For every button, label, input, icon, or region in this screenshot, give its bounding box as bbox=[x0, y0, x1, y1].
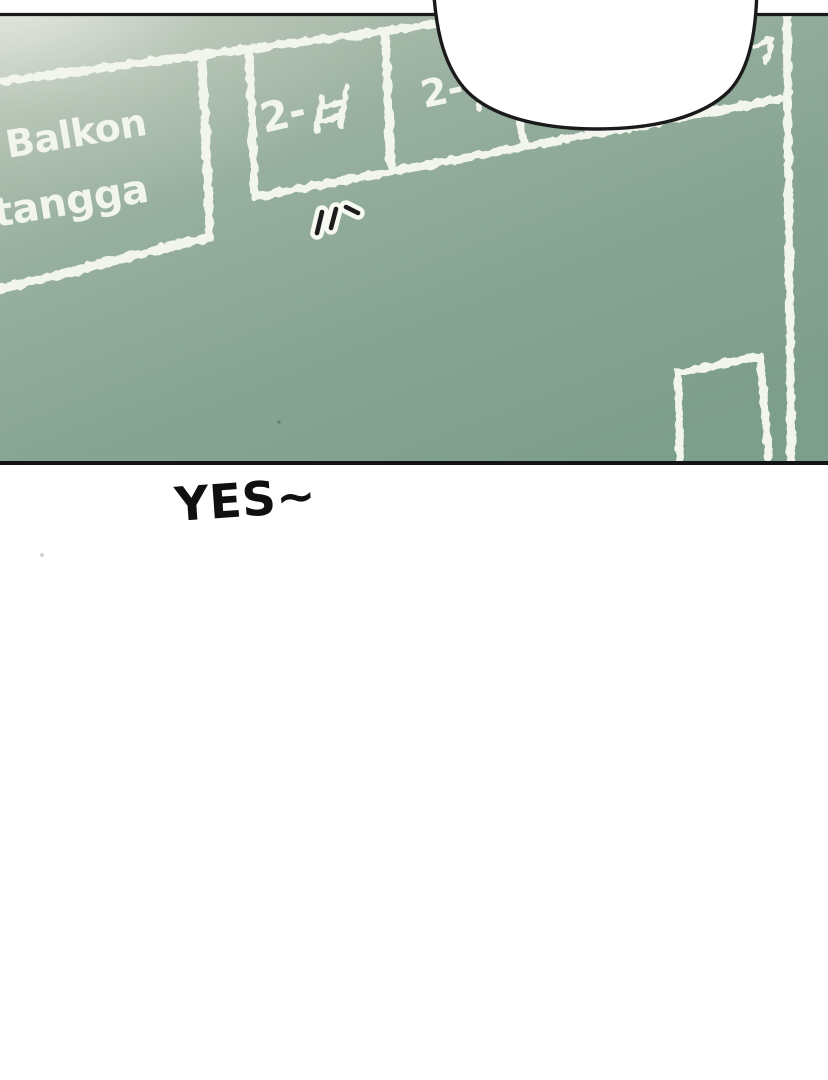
dialogue-text: YES~ bbox=[172, 468, 318, 533]
board-speck bbox=[277, 420, 280, 423]
comic-page: Balkon tangga 2- 2- YES~ bbox=[0, 0, 828, 1080]
gutter-speck bbox=[40, 553, 44, 557]
unit1-right-wall bbox=[385, 31, 391, 166]
comic-panel-canvas: Balkon tangga 2- 2- YES~ bbox=[0, 0, 828, 1080]
right-wall-line bbox=[787, 17, 791, 461]
unit1-left-wall bbox=[249, 51, 255, 196]
